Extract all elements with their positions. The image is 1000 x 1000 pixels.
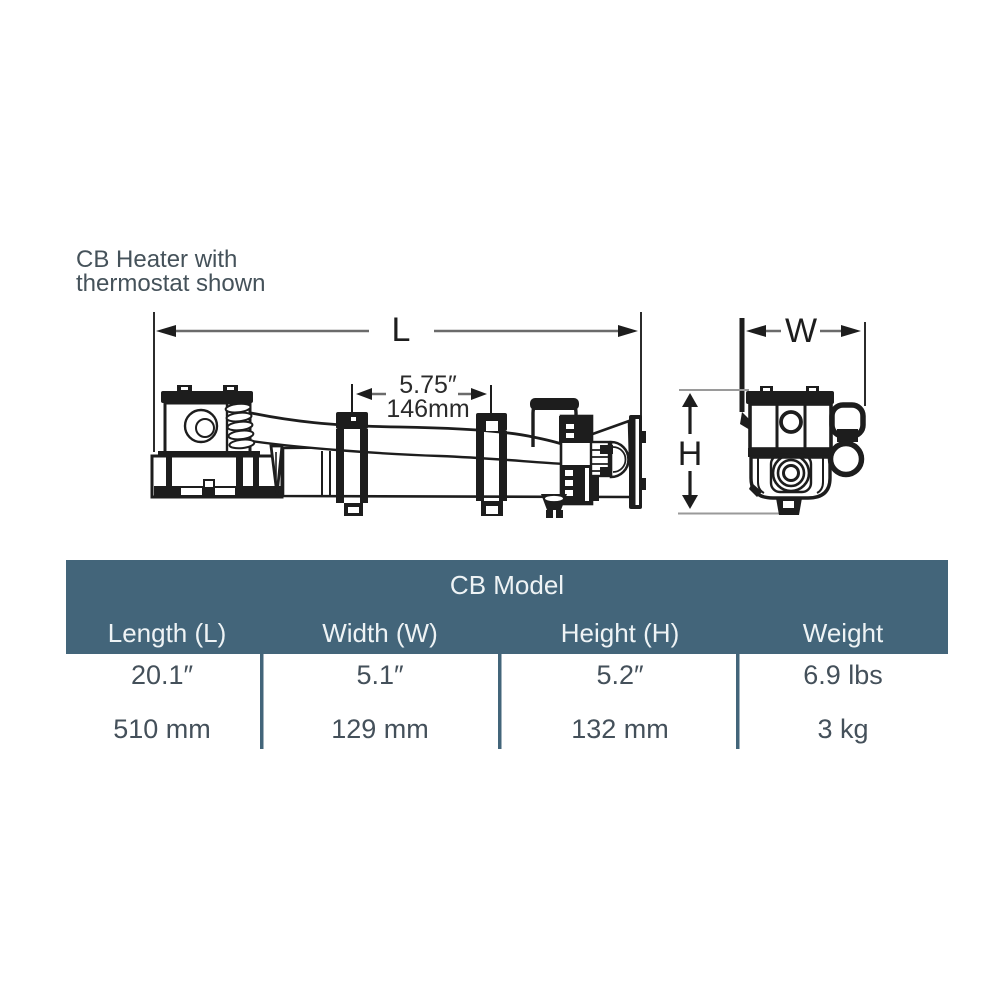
svg-text:H: H: [678, 435, 703, 473]
svg-text:129 mm: 129 mm: [331, 714, 429, 744]
svg-text:20.1″: 20.1″: [131, 660, 194, 690]
svg-text:3 kg: 3 kg: [817, 714, 868, 744]
svg-text:thermostat shown: thermostat shown: [76, 270, 265, 297]
svg-text:146mm: 146mm: [386, 395, 469, 423]
svg-text:CB Heater with: CB Heater with: [76, 246, 237, 273]
svg-text:Height (H): Height (H): [561, 618, 679, 648]
svg-text:5.2″: 5.2″: [596, 660, 644, 690]
svg-text:CB Model: CB Model: [450, 570, 564, 600]
svg-text:W: W: [785, 312, 817, 350]
svg-text:510 mm: 510 mm: [113, 714, 211, 744]
svg-text:L: L: [392, 311, 411, 349]
svg-text:6.9 lbs: 6.9 lbs: [803, 660, 883, 690]
svg-text:Weight: Weight: [803, 618, 884, 648]
svg-text:5.1″: 5.1″: [356, 660, 404, 690]
svg-text:132 mm: 132 mm: [571, 714, 669, 744]
svg-text:Width (W): Width (W): [322, 618, 438, 648]
svg-text:Length (L): Length (L): [108, 618, 227, 648]
